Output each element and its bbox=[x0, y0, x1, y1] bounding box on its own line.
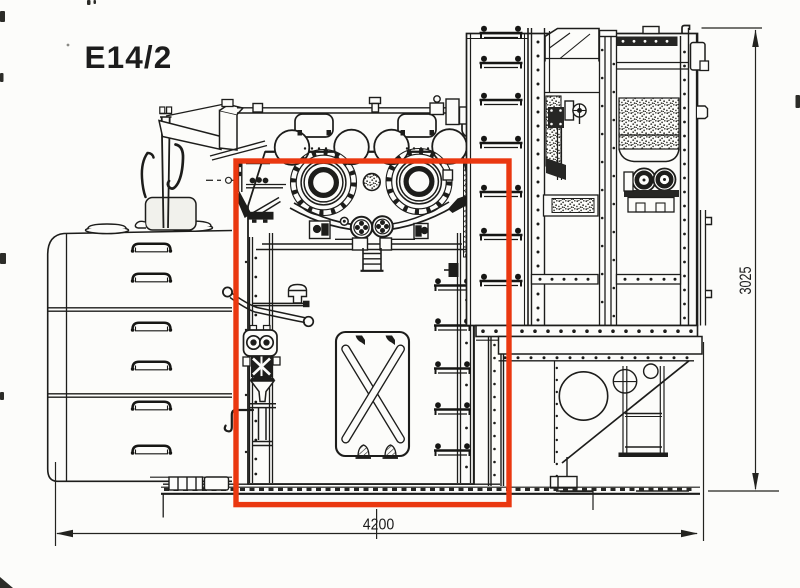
svg-text:4200: 4200 bbox=[363, 517, 395, 534]
svg-text:3025: 3025 bbox=[737, 267, 755, 295]
svg-text:E14/2: E14/2 bbox=[85, 39, 173, 75]
